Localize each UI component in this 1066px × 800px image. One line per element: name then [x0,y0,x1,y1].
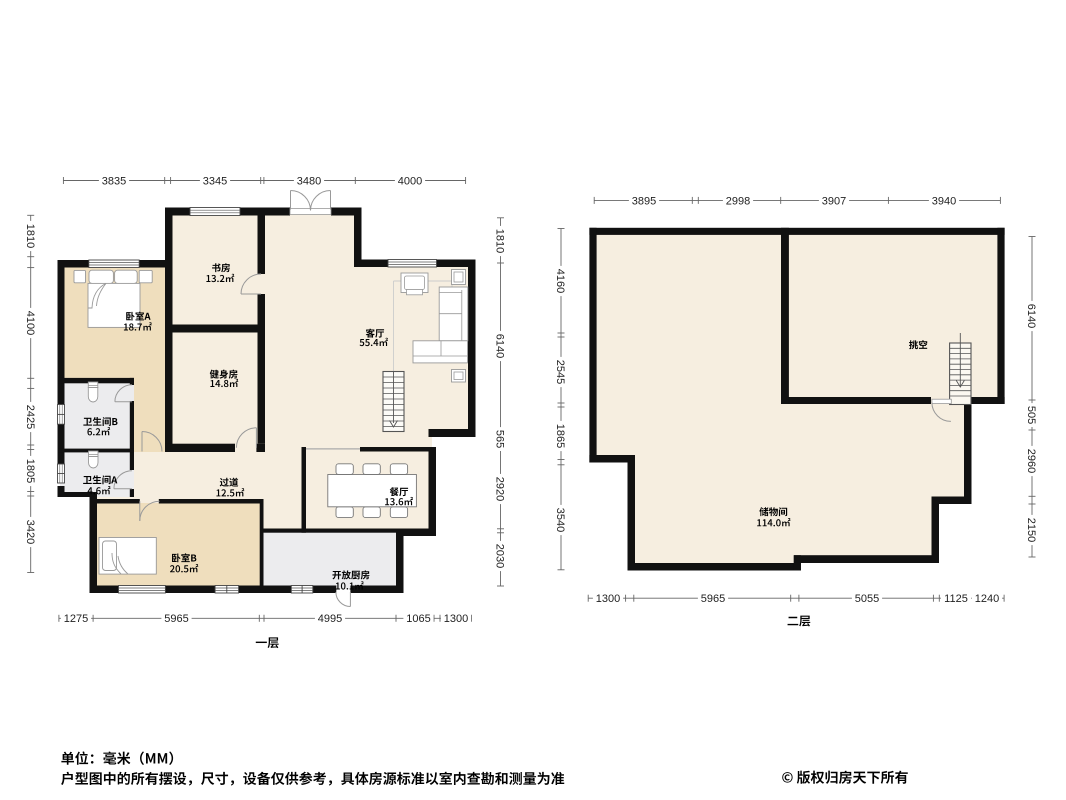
svg-text:4000: 4000 [398,175,422,187]
svg-text:1275: 1275 [64,613,88,625]
svg-text:3420: 3420 [24,520,36,544]
svg-text:2030: 2030 [494,544,506,568]
svg-text:2150: 2150 [1025,518,1037,542]
svg-text:6140: 6140 [1025,304,1037,328]
svg-text:1125: 1125 [944,593,968,605]
svg-text:3345: 3345 [203,175,227,187]
svg-text:2545: 2545 [554,360,566,384]
svg-text:1865: 1865 [554,424,566,448]
svg-text:1805: 1805 [24,459,36,483]
svg-text:3940: 3940 [932,195,956,207]
svg-text:1240: 1240 [975,593,999,605]
svg-text:4995: 4995 [318,613,342,625]
svg-text:3835: 3835 [102,175,126,187]
svg-text:5965: 5965 [701,593,725,605]
svg-text:5965: 5965 [164,613,188,625]
svg-text:4160: 4160 [554,269,566,293]
svg-text:5055: 5055 [855,593,879,605]
svg-text:2920: 2920 [494,477,506,501]
svg-text:2998: 2998 [726,195,750,207]
svg-text:6140: 6140 [494,334,506,358]
svg-text:1300: 1300 [596,593,620,605]
svg-text:1065: 1065 [406,613,430,625]
svg-text:2960: 2960 [1025,449,1037,473]
svg-text:505: 505 [1025,406,1037,424]
svg-text:1810: 1810 [494,229,506,253]
svg-text:1810: 1810 [24,224,36,248]
svg-text:3480: 3480 [297,175,321,187]
svg-text:2425: 2425 [24,405,36,429]
svg-text:1300: 1300 [444,613,468,625]
svg-text:3895: 3895 [632,195,656,207]
svg-text:3907: 3907 [822,195,846,207]
svg-text:4100: 4100 [24,311,36,335]
svg-text:3540: 3540 [554,508,566,532]
svg-text:565: 565 [494,430,506,448]
